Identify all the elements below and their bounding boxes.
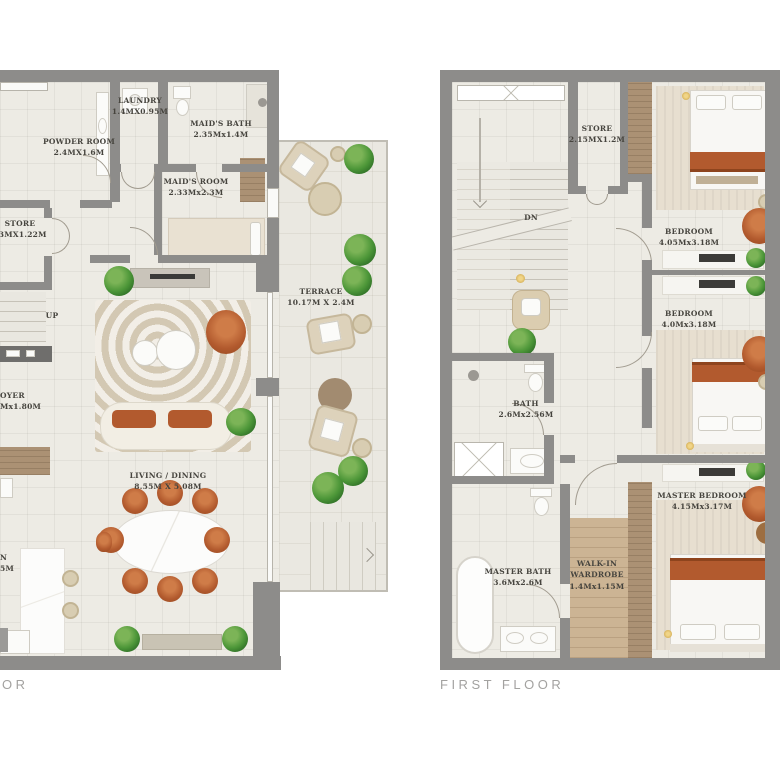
- wall-left: [440, 70, 452, 658]
- vanity-basin: [530, 632, 548, 644]
- powder-window: [0, 82, 48, 91]
- toilet-cistern: [530, 488, 552, 497]
- wall-bath-right-a: [544, 353, 554, 403]
- room-label-terrace: TERRACE 10.17M X 2.4M: [287, 286, 354, 309]
- room-dims: 2.35Mx1.4M: [190, 129, 252, 140]
- wall-maidsbath-bottom: [222, 164, 279, 172]
- room-name-line2: WARDROBE: [570, 569, 625, 580]
- dining-chair: [204, 527, 230, 553]
- wall-laundry-bottom-l: [110, 164, 121, 172]
- room-name-line1: WALK-IN: [570, 558, 625, 569]
- living-glass-door2: [267, 396, 273, 582]
- coffee-table-small: [132, 340, 158, 366]
- room-name: BATH: [499, 398, 554, 409]
- shower-head: [468, 370, 479, 381]
- ground-floor-plan: POWDER ROOM 2.4MX1.6M LAUNDRY 1.4MX0.95M…: [0, 70, 392, 670]
- room-label-living-dining: LIVING / DINING 8.55M X 5.08M: [130, 470, 207, 493]
- kitchen-stool: [62, 602, 79, 619]
- room-label-bedroom1: BEDROOM 4.05Mx3.18M: [659, 226, 719, 249]
- toilet: [528, 373, 543, 392]
- vanity-basin: [520, 454, 544, 468]
- shower-box: [454, 442, 504, 478]
- bedside-lamp: [682, 92, 690, 100]
- wall-bath-right-b: [544, 435, 554, 476]
- bed-pillow: [698, 416, 728, 431]
- toilet-cistern: [524, 364, 546, 373]
- console-item1: [6, 350, 20, 357]
- ground-floor-title: OR: [2, 677, 29, 692]
- wall-hall-master-r: [617, 455, 652, 463]
- room-name: STORE: [569, 123, 625, 134]
- powder-basin: [98, 118, 107, 134]
- dining-chair: [122, 568, 148, 594]
- bed-pillow: [732, 416, 762, 431]
- sofa-cushion-2: [168, 410, 212, 428]
- plant-icon: [746, 248, 766, 268]
- room-label-master-bath: MASTER BATH 3.6Mx2.6M: [485, 566, 552, 589]
- first-floor-title: FIRST FLOOR: [440, 677, 564, 692]
- living-glass-door1: [267, 292, 273, 378]
- room-dims: 5M: [0, 563, 14, 574]
- bedside-lamp: [686, 442, 694, 450]
- wall-corridor-bottom-l: [90, 255, 130, 263]
- room-name: LIVING / DINING: [130, 470, 207, 481]
- plant-icon: [104, 266, 134, 296]
- wall-powder-bottom-l: [0, 200, 50, 208]
- room-dims: 1.4MX0.95M: [112, 106, 168, 117]
- coffee-table-large: [156, 330, 196, 370]
- plant-icon: [344, 234, 376, 266]
- maids-bath-cistern: [173, 86, 191, 99]
- tv-icon: [699, 468, 735, 476]
- tv-icon: [699, 254, 735, 262]
- room-label-store: STORE 2.15MX1.2M: [569, 123, 625, 146]
- room-name: STORE: [0, 218, 47, 229]
- wall-maidsroom-left: [154, 164, 162, 255]
- room-name: BEDROOM: [659, 226, 719, 237]
- room-label-store: STORE 93MX1.22M: [0, 218, 47, 241]
- wall-between-bedrooms: [652, 270, 768, 275]
- edge-fixture: [0, 478, 13, 498]
- room-name: MAID'S ROOM: [164, 176, 229, 187]
- floor-plan-page: POWDER ROOM 2.4MX1.6M LAUNDRY 1.4MX0.95M…: [0, 0, 780, 769]
- stairs-arrow-line: [479, 118, 481, 202]
- maids-shower-head: [258, 98, 267, 107]
- wall-bed2-master: [652, 455, 768, 463]
- room-name: MASTER BEDROOM: [657, 490, 746, 501]
- wall-bath-bottom: [452, 476, 554, 484]
- room-name: MAID'S BATH: [190, 118, 252, 129]
- terrace-edge-bottom: [279, 590, 388, 592]
- console-item2: [26, 350, 35, 357]
- bottom-console: [142, 634, 222, 650]
- bed-pillow: [724, 624, 760, 640]
- wall-bottom: [0, 656, 281, 670]
- room-name: N: [0, 552, 14, 563]
- room-dims: 4.0Mx3.18M: [662, 319, 717, 330]
- dining-chair: [157, 576, 183, 602]
- wall-hall-master-l: [560, 455, 575, 463]
- room-label-powder: POWDER ROOM 2.4MX1.6M: [43, 136, 115, 159]
- room-label-master-bedroom: MASTER BEDROOM 4.15Mx3.17M: [657, 490, 746, 513]
- wall-mbath-right-a: [560, 484, 570, 584]
- plant-icon: [746, 460, 766, 480]
- bedside-lamp: [664, 630, 672, 638]
- plant-icon: [746, 276, 766, 296]
- foyer-wood-console: [0, 447, 50, 475]
- wall-right-notch: [253, 582, 280, 656]
- wall-bath-top: [452, 353, 552, 361]
- stairs-flight-right: [510, 162, 568, 310]
- room-label-kitchen-cut: N 5M: [0, 552, 14, 575]
- maids-bath-toilet: [176, 99, 189, 116]
- bed-throw-terracotta: [690, 152, 766, 172]
- room-dims: 2.4MX1.6M: [43, 147, 115, 158]
- bed-headboard: [670, 644, 766, 652]
- dining-chair: [192, 568, 218, 594]
- stairwell-window: [457, 85, 565, 101]
- room-label-walkin-wardrobe: WALK-IN WARDROBE 1.4Mx1.15M: [570, 558, 625, 592]
- plant-icon: [508, 328, 536, 356]
- wall-wardrobe-stub: [628, 174, 652, 182]
- vanity-basin: [506, 632, 524, 644]
- side-table: [352, 314, 372, 334]
- bed-throw-terracotta: [670, 558, 766, 580]
- wall-hall-mid: [642, 260, 652, 336]
- terrace-edge-right: [386, 140, 388, 592]
- plant-icon: [338, 456, 368, 486]
- bed-pillow: [696, 95, 726, 110]
- plant-icon: [114, 626, 140, 652]
- wall-store-right-a: [44, 208, 52, 218]
- room-name: LAUNDRY: [112, 95, 168, 106]
- maids-bed-pillow: [250, 222, 261, 256]
- terracotta-pot: [96, 532, 112, 552]
- toilet: [534, 497, 549, 516]
- room-dims: 2.33Mx2.3M: [164, 187, 229, 198]
- kitchen-stool: [62, 570, 79, 587]
- room-dims: Mx1.80M: [0, 401, 41, 412]
- floor-lamp: [516, 274, 525, 283]
- room-dims: 4.05Mx3.18M: [659, 237, 719, 248]
- wall-corridor-bottom-r: [158, 255, 279, 263]
- stairs-direction: DN: [524, 212, 538, 223]
- room-label-maids-bath: MAID'S BATH 2.35Mx1.4M: [190, 118, 252, 141]
- bed-pillow: [732, 95, 762, 110]
- room-name: TERRACE: [287, 286, 354, 297]
- room-dims: 4.15Mx3.17M: [657, 501, 746, 512]
- jute-rug: [308, 182, 342, 216]
- wall-store-bottom: [0, 282, 52, 290]
- edge-fixture-2: [0, 628, 8, 652]
- armchair-pillow: [521, 298, 541, 316]
- room-name: MASTER BATH: [485, 566, 552, 577]
- maids-room-window: [267, 188, 279, 218]
- room-name: POWDER ROOM: [43, 136, 115, 147]
- wall-store-bottom-l: [568, 186, 586, 194]
- wall-powder-bottom-r: [80, 200, 112, 208]
- wall-laundry-bottom-r: [156, 164, 196, 172]
- lounge-pillow: [318, 320, 341, 343]
- room-label-bath: BATH 2.6Mx2.56M: [499, 398, 554, 421]
- wall-right: [765, 70, 780, 670]
- room-dims: 8.55M X 5.08M: [130, 481, 207, 492]
- room-name: OYER: [0, 390, 41, 401]
- wall-hall-bed1: [642, 182, 652, 228]
- plant-icon: [226, 408, 256, 436]
- wall-bottom: [440, 658, 780, 670]
- tv-icon: [150, 274, 195, 279]
- stairs-up: [0, 292, 46, 342]
- first-floor-plan: STORE 2.15MX1.2M DN BEDROOM 4.05Mx3.18M …: [440, 70, 780, 670]
- wall-store-right-b: [44, 256, 52, 282]
- room-dims: 2.6Mx2.56M: [499, 409, 554, 420]
- room-dims: 10.17M X 2.4M: [287, 297, 354, 308]
- wall-store-bottom-r: [608, 186, 628, 194]
- room-label-foyer-cut: OYER Mx1.80M: [0, 390, 41, 413]
- wall-right-pillar2: [256, 378, 279, 396]
- wall-right-upper: [267, 82, 279, 162]
- wall-top: [0, 70, 279, 82]
- sofa-cushion-1: [112, 410, 156, 428]
- bed-pillow: [680, 624, 716, 640]
- wall-mbath-right-b: [560, 618, 570, 658]
- plant-icon: [222, 626, 248, 652]
- room-dims: 3.6Mx2.6M: [485, 577, 552, 588]
- side-table: [352, 438, 372, 458]
- wall-top: [440, 70, 780, 82]
- room-dims: 1.4Mx1.15M: [570, 581, 625, 592]
- bed-bench: [696, 176, 758, 184]
- stairs-label-up: UP: [46, 310, 59, 321]
- master-wardrobe-strip: [628, 482, 652, 658]
- room-label-maids-room: MAID'S ROOM 2.33Mx2.3M: [164, 176, 229, 199]
- armchair-terracotta: [206, 310, 246, 354]
- stairs-label-dn: DN: [524, 212, 538, 223]
- plant-icon: [344, 144, 374, 174]
- tv-icon: [699, 280, 735, 288]
- room-dims: 2.15MX1.2M: [569, 134, 625, 145]
- room-label-bedroom2: BEDROOM 4.0Mx3.18M: [662, 308, 717, 331]
- room-name: BEDROOM: [662, 308, 717, 319]
- wall-hall-bed2: [642, 368, 652, 428]
- wall-right-seg2: [267, 218, 279, 255]
- room-dims: 93MX1.22M: [0, 229, 47, 240]
- bed-headboard: [692, 444, 766, 452]
- room-label-laundry: LAUNDRY 1.4MX0.95M: [112, 95, 168, 118]
- stairs-direction: UP: [46, 310, 59, 321]
- bedroom1-wardrobe: [628, 82, 652, 174]
